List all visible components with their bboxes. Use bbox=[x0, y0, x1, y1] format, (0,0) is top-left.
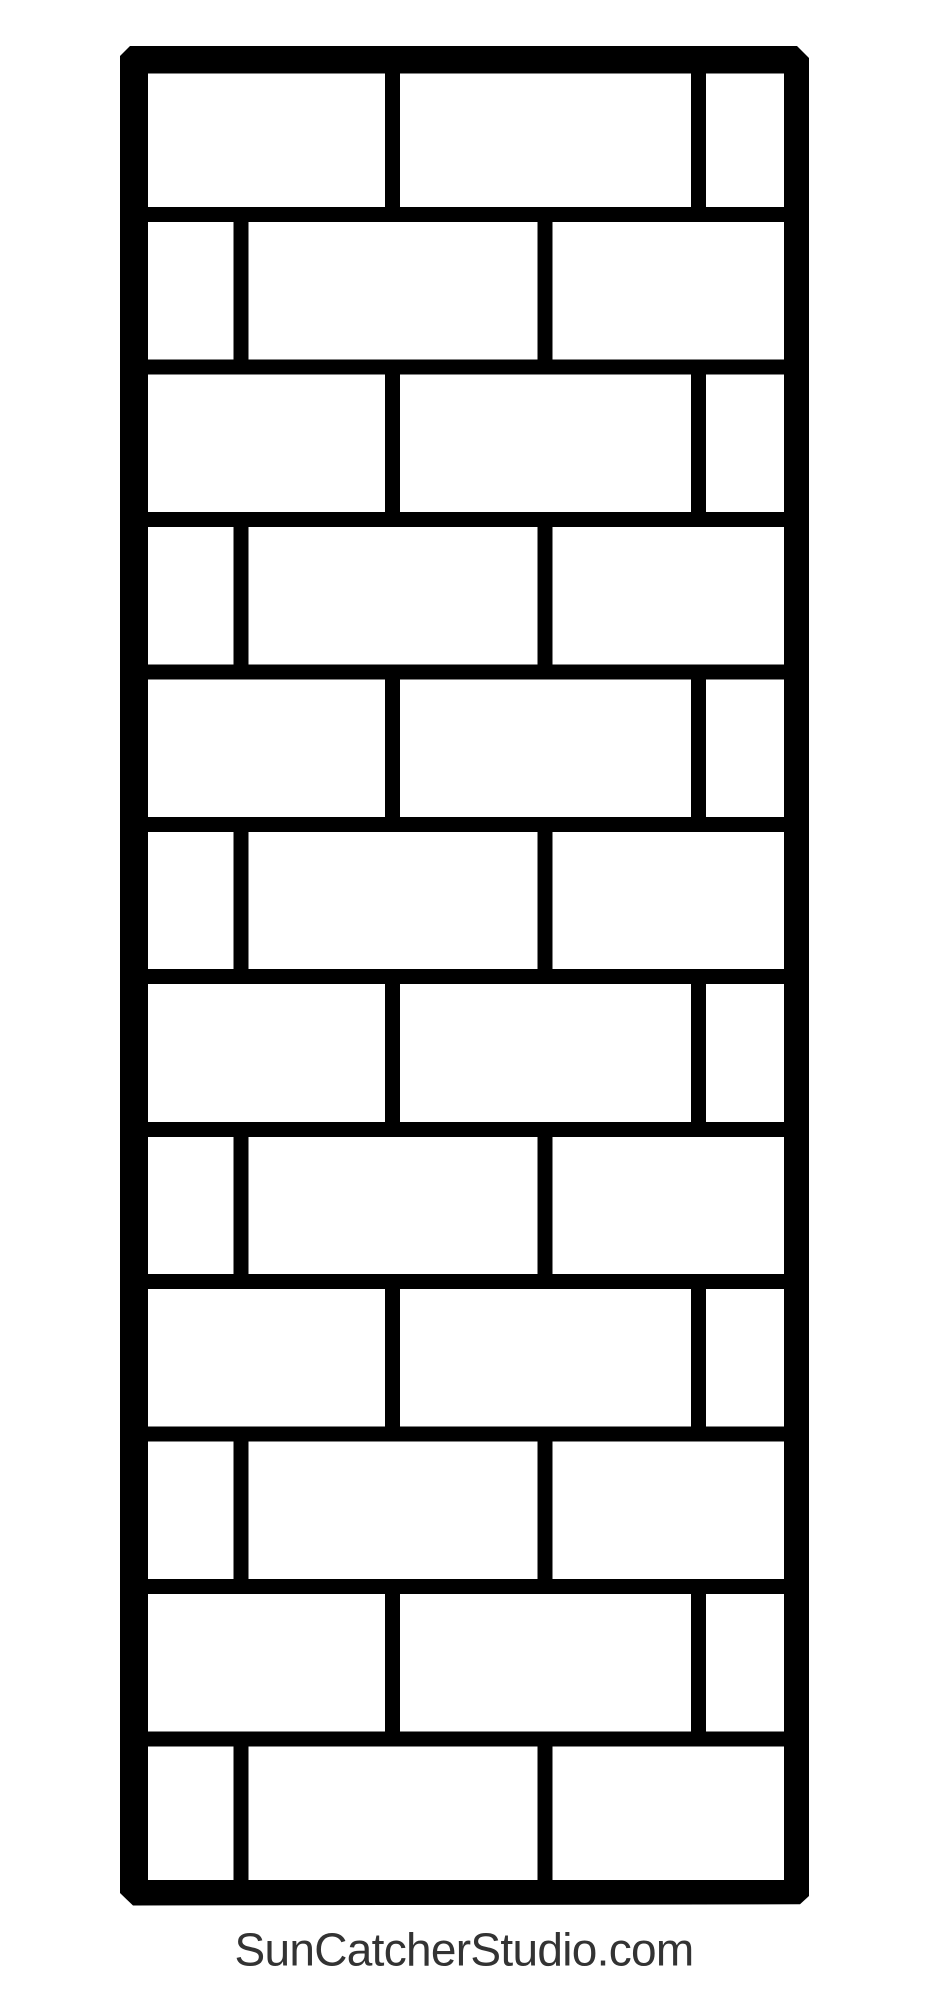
svg-text:SunCatcherStudio.com: SunCatcherStudio.com bbox=[234, 1924, 693, 1976]
